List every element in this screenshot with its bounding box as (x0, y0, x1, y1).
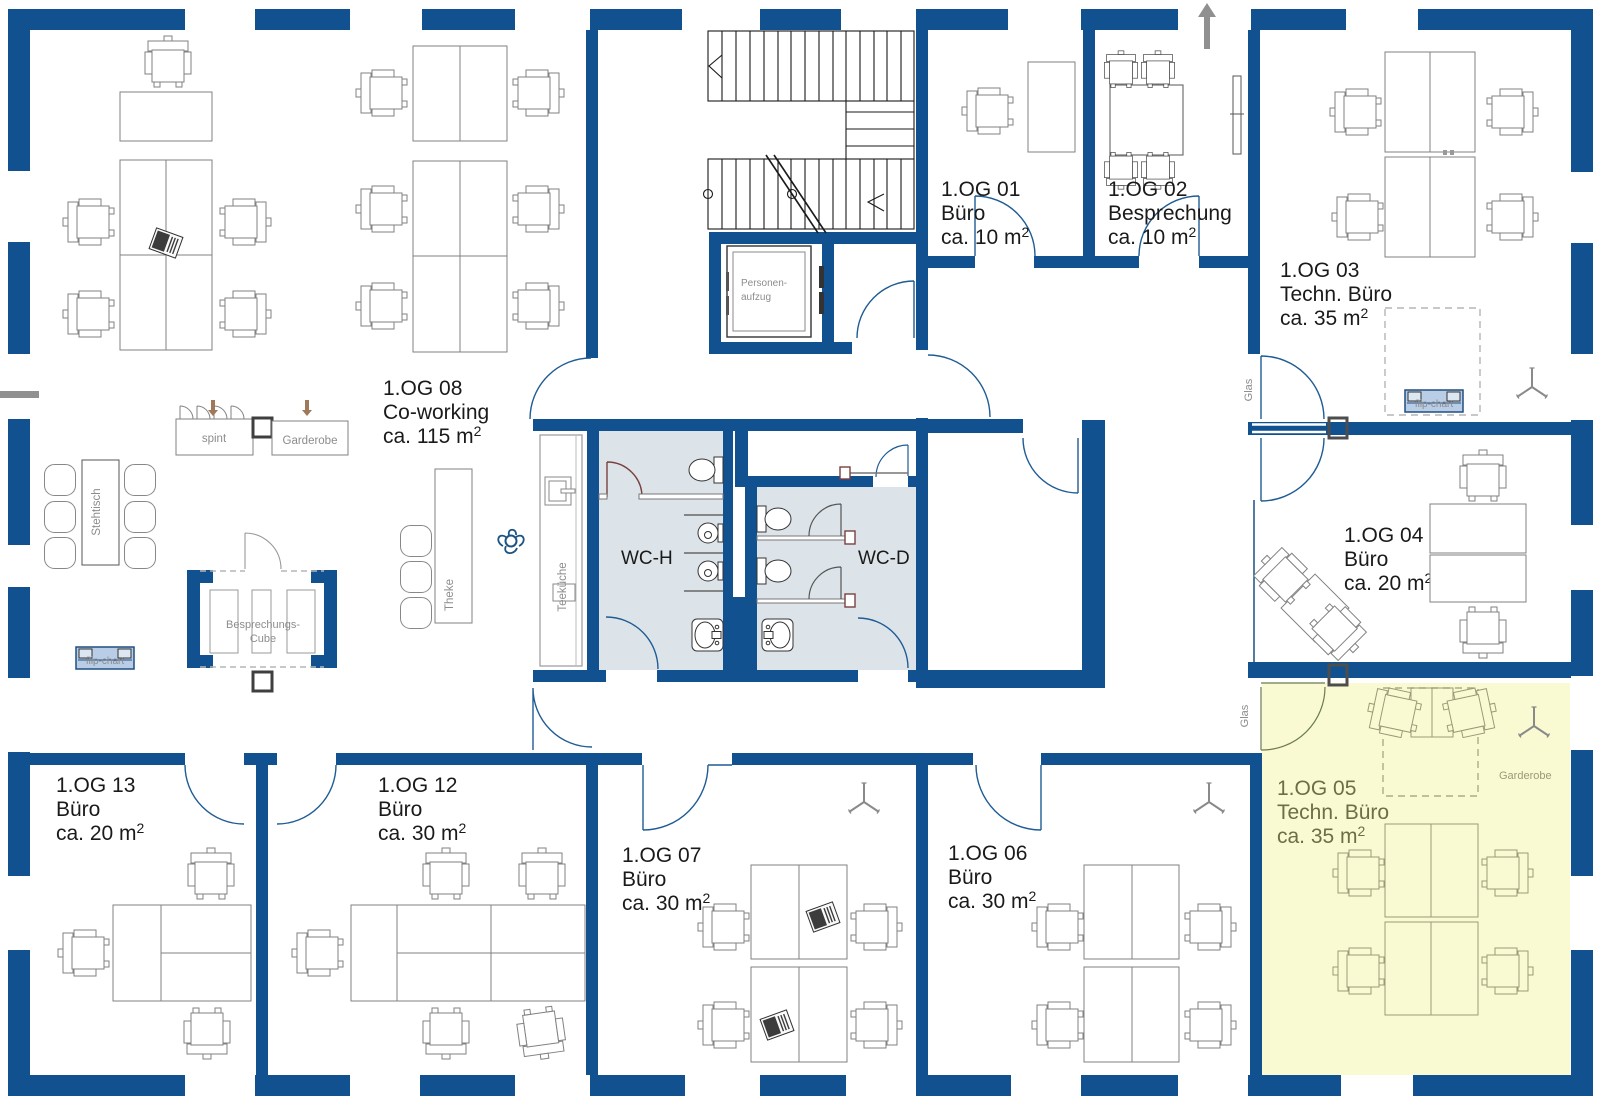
svg-text:Techn. Büro: Techn. Büro (1280, 283, 1392, 306)
svg-text:Stehtisch: Stehtisch (91, 488, 103, 535)
svg-text:ca. 35 m2: ca. 35 m2 (1277, 823, 1366, 848)
svg-text:aufzug: aufzug (741, 292, 771, 303)
svg-text:Büro: Büro (948, 866, 992, 889)
svg-text:WC-H: WC-H (621, 548, 673, 569)
svg-text:ca. 30 m2: ca. 30 m2 (622, 890, 711, 915)
svg-text:spint: spint (202, 433, 227, 445)
svg-text:Besprechungs-: Besprechungs- (226, 619, 300, 631)
svg-text:1.OG 08: 1.OG 08 (383, 377, 462, 400)
svg-text:ca. 10 m2: ca. 10 m2 (1108, 224, 1197, 249)
svg-text:ca. 35 m2: ca. 35 m2 (1280, 305, 1369, 330)
svg-text:1.OG 03: 1.OG 03 (1280, 259, 1359, 282)
svg-text:Glas: Glas (1239, 704, 1251, 727)
svg-text:ca. 10 m2: ca. 10 m2 (941, 224, 1030, 249)
svg-text:Techn. Büro: Techn. Büro (1277, 801, 1389, 824)
svg-text:1.OG 01: 1.OG 01 (941, 178, 1020, 201)
svg-text:1.OG 13: 1.OG 13 (56, 774, 135, 797)
svg-text:ca. 115 m2: ca. 115 m2 (383, 423, 482, 448)
svg-text:ca. 20 m2: ca. 20 m2 (1344, 570, 1433, 595)
svg-text:Cube: Cube (250, 633, 276, 645)
svg-text:1.OG 06: 1.OG 06 (948, 842, 1027, 865)
svg-text:Besprechung: Besprechung (1108, 202, 1232, 225)
svg-text:1.OG 04: 1.OG 04 (1344, 524, 1424, 547)
svg-text:Büro: Büro (56, 798, 100, 821)
svg-text:Teeküche: Teeküche (557, 562, 569, 611)
svg-text:Garderobe: Garderobe (283, 435, 338, 447)
svg-text:Büro: Büro (1344, 548, 1388, 571)
svg-text:ca. 20 m2: ca. 20 m2 (56, 820, 145, 845)
svg-text:Personen-: Personen- (741, 278, 787, 289)
svg-text:WC-D: WC-D (858, 548, 910, 569)
svg-text:Büro: Büro (378, 798, 422, 821)
svg-text:Büro: Büro (622, 868, 666, 891)
svg-text:1.OG 12: 1.OG 12 (378, 774, 457, 797)
svg-text:Garderobe: Garderobe (1499, 770, 1552, 782)
svg-text:1.OG 05: 1.OG 05 (1277, 777, 1356, 800)
svg-text:ca. 30 m2: ca. 30 m2 (378, 820, 467, 845)
svg-text:Büro: Büro (941, 202, 985, 225)
svg-text:Co-working: Co-working (383, 401, 489, 424)
svg-text:1.OG 07: 1.OG 07 (622, 844, 701, 867)
svg-text:Theke: Theke (444, 579, 456, 611)
svg-text:Glas: Glas (1243, 378, 1255, 401)
svg-text:ca. 30 m2: ca. 30 m2 (948, 888, 1037, 913)
svg-text:1.OG 02: 1.OG 02 (1108, 178, 1187, 201)
